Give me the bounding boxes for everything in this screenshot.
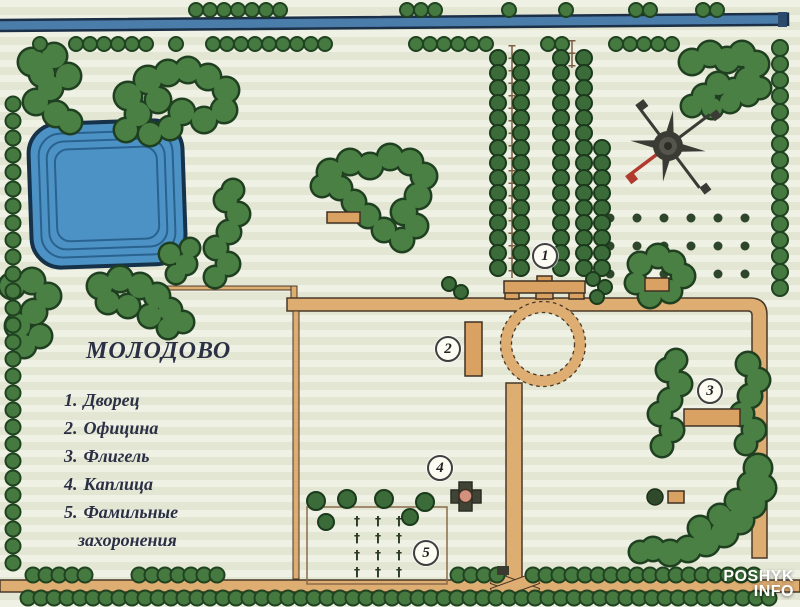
south-road: [506, 383, 522, 583]
svg-text:†: †: [396, 531, 402, 545]
svg-text:†: †: [354, 548, 360, 562]
legend-item-palace: 1.Дворец: [64, 386, 184, 414]
marker-5-burials: 5: [413, 540, 439, 566]
chapel-building: [451, 482, 481, 511]
marker-2-officina: 2: [435, 336, 461, 362]
svg-text:†: †: [396, 565, 402, 579]
junction-structure: [497, 566, 509, 575]
field-edge-path: [293, 311, 299, 579]
legend-item-fligel: 3.Флигель: [64, 442, 184, 470]
legend-item-chapel: 4.Каплица: [64, 470, 184, 498]
svg-text:†: †: [354, 514, 360, 528]
svg-text:†: †: [375, 565, 381, 579]
circular-driveway: [501, 302, 586, 387]
watermark: POSHYK INFO: [723, 569, 794, 599]
legend-item-burials: 5.Фамильные: [64, 498, 184, 526]
svg-text:†: †: [375, 514, 381, 528]
river: [0, 14, 788, 31]
map-legend: 1.Дворец 2.Официна 3.Флигель 4.Каплица 5…: [64, 386, 184, 554]
outbuilding-east: [645, 278, 669, 291]
marker-4-chapel: 4: [427, 455, 453, 481]
legend-item-burials-cont: захоронения: [78, 526, 184, 554]
estate-plan-map: †††††††††††††: [0, 0, 800, 607]
marker-1-palace: 1: [532, 243, 558, 269]
outbuilding-north: [327, 212, 360, 223]
officina-building: [465, 322, 482, 376]
palace-building: [504, 276, 585, 299]
outbuilding-southeast: [668, 491, 684, 503]
map-title: МОЛОДОВО: [86, 338, 231, 365]
fligel-building: [684, 409, 740, 426]
svg-text:†: †: [375, 531, 381, 545]
river-end: [778, 12, 787, 27]
svg-text:†: †: [396, 548, 402, 562]
tree-single: [647, 489, 663, 505]
svg-text:†: †: [354, 565, 360, 579]
svg-text:†: †: [354, 531, 360, 545]
marker-3-fligel: 3: [697, 378, 723, 404]
svg-text:†: †: [375, 548, 381, 562]
legend-item-officina: 2.Официна: [64, 414, 184, 442]
